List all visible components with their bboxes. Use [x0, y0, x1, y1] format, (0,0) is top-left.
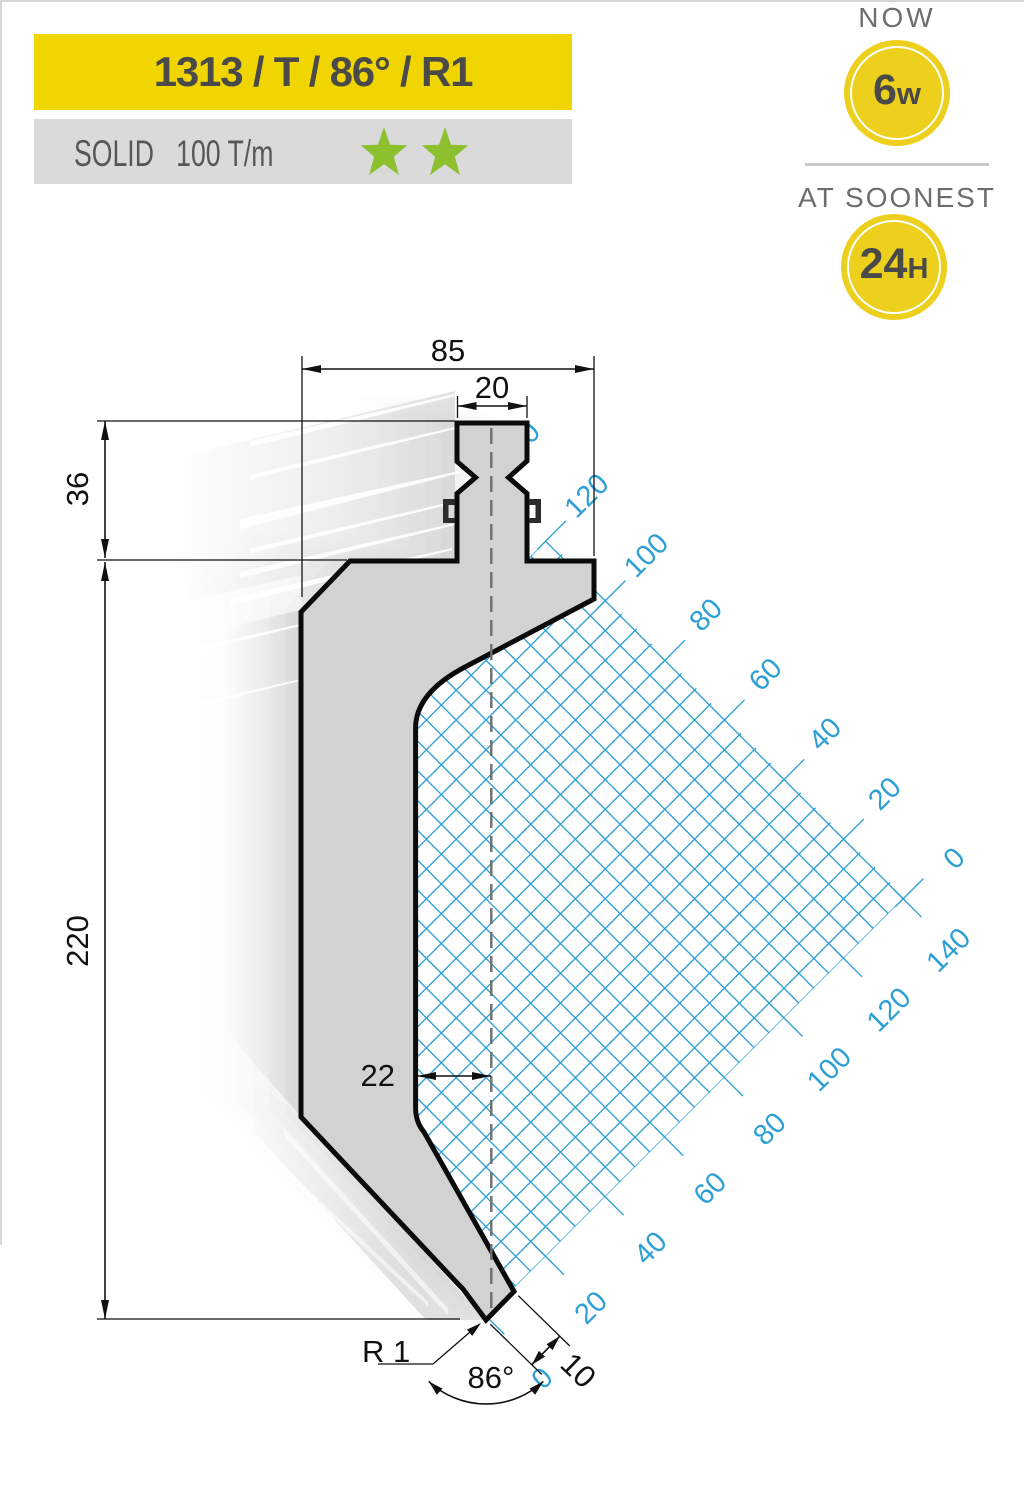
svg-text:40: 40	[628, 1226, 673, 1271]
svg-text:80: 80	[684, 593, 729, 638]
svg-text:20: 20	[475, 370, 509, 405]
svg-text:60: 60	[688, 1166, 733, 1211]
svg-text:60: 60	[743, 652, 788, 697]
svg-text:220: 220	[60, 915, 95, 967]
svg-text:100: 100	[801, 1041, 858, 1098]
svg-text:100: 100	[618, 527, 675, 584]
svg-text:40: 40	[803, 712, 848, 757]
svg-text:R 1: R 1	[362, 1334, 410, 1369]
svg-text:86°: 86°	[468, 1360, 515, 1395]
svg-text:80: 80	[747, 1107, 792, 1152]
svg-text:10: 10	[554, 1346, 603, 1395]
svg-text:20: 20	[862, 771, 907, 816]
svg-text:22: 22	[361, 1058, 395, 1093]
svg-text:140: 140	[920, 922, 977, 979]
svg-text:36: 36	[60, 472, 95, 506]
svg-text:0: 0	[938, 842, 972, 876]
svg-text:20: 20	[569, 1285, 614, 1330]
svg-text:120: 120	[861, 982, 918, 1039]
svg-text:85: 85	[431, 333, 465, 368]
svg-text:120: 120	[559, 468, 616, 525]
